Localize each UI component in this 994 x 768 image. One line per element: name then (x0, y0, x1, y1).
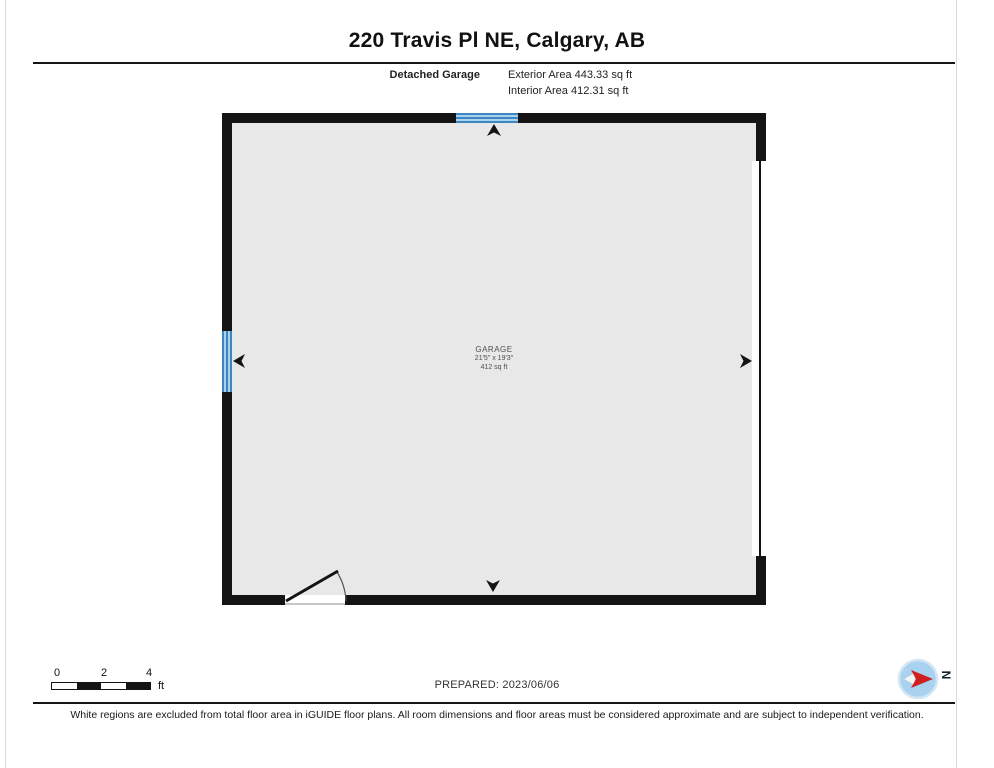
arrow-up-icon (487, 124, 501, 136)
arrow-down-icon (486, 580, 500, 592)
arrow-right-icon (740, 354, 752, 368)
page-title: 220 Travis Pl NE, Calgary, AB (0, 29, 994, 53)
exterior-area-label: Exterior Area 443.33 sq ft (508, 69, 632, 81)
scale-tick-0: 0 (47, 667, 67, 679)
footer-divider (33, 702, 955, 704)
arrow-left-icon (233, 354, 245, 368)
window-left (222, 331, 232, 392)
room-name: GARAGE (394, 345, 594, 354)
compass: N (897, 657, 957, 703)
scale-tick-4: 4 (139, 667, 159, 679)
floor-plan-page: 220 Travis Pl NE, Calgary, AB Detached G… (0, 0, 994, 768)
room-area: 412 sq ft (394, 363, 594, 372)
disclaimer-text: White regions are excluded from total fl… (0, 709, 994, 721)
garage-door-panel (759, 161, 761, 556)
interior-area-label: Interior Area 412.31 sq ft (508, 85, 628, 97)
window-top (456, 113, 518, 123)
scale-tick-2: 2 (94, 667, 114, 679)
header-divider (33, 62, 955, 64)
prepared-date: PREPARED: 2023/06/06 (0, 679, 994, 691)
floor-name-label: Detached Garage (280, 69, 480, 81)
room-dimensions: 21'5" x 19'3" (394, 354, 594, 363)
door-threshold (285, 595, 345, 605)
room-label: GARAGE 21'5" x 19'3" 412 sq ft (394, 345, 594, 372)
north-label: N (937, 667, 953, 683)
